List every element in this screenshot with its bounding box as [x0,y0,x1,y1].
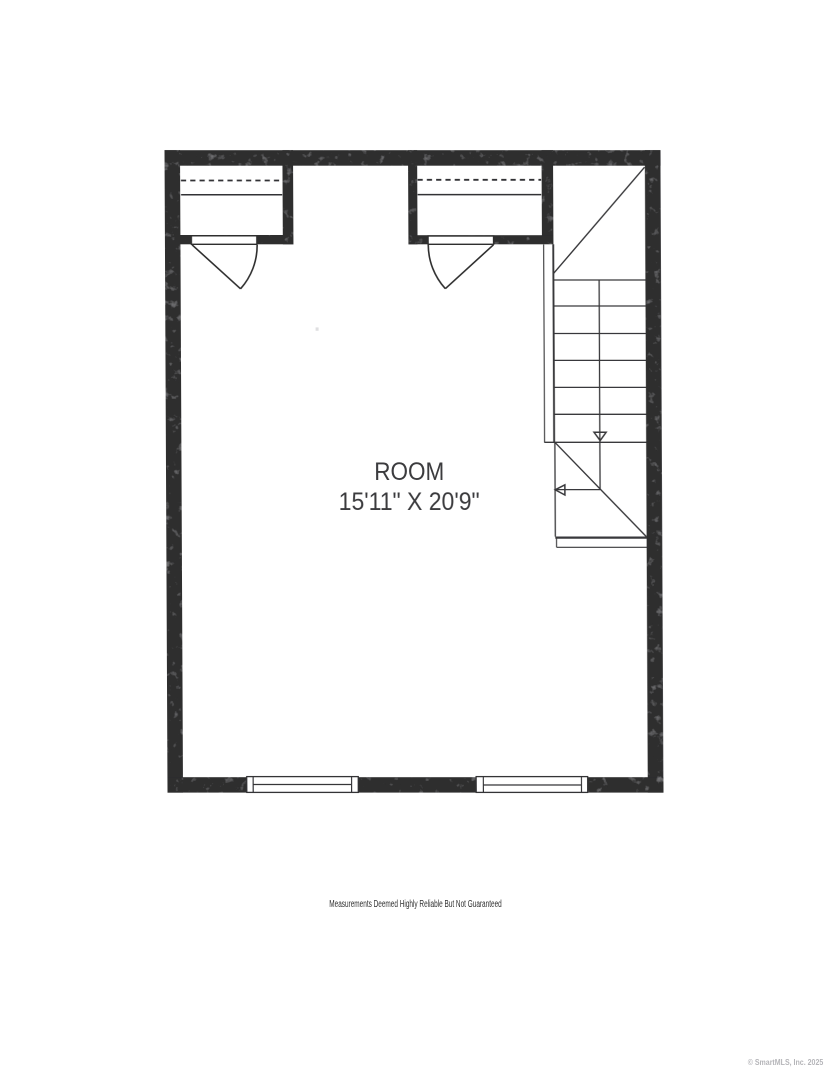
svg-text:Measurements Deemed Highly Rel: Measurements Deemed Highly Reliable But … [329,899,502,910]
svg-text:© SmartMLS, Inc. 2025: © SmartMLS, Inc. 2025 [748,1058,824,1067]
svg-text:15'11" X 20'9": 15'11" X 20'9" [339,488,480,516]
svg-text:ROOM: ROOM [374,458,444,486]
